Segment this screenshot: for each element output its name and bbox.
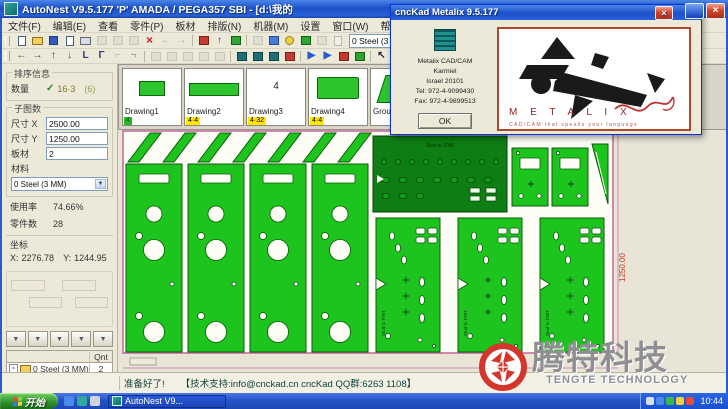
preview-button[interactable] — [62, 34, 77, 47]
nested-part-panel[interactable] — [126, 164, 182, 352]
subdrawing-group-title: 子图数 — [12, 102, 43, 115]
post-icon — [339, 52, 349, 61]
align-icon — [215, 52, 225, 61]
rotate-left-button[interactable] — [78, 50, 93, 63]
clock-icon — [253, 52, 263, 61]
copy-sheet-button[interactable] — [314, 34, 329, 47]
copy-icon — [113, 36, 123, 45]
copy-sheet-icon — [317, 36, 327, 45]
status-ready-text: 准备好了! — [124, 376, 165, 390]
check-icon — [46, 84, 54, 94]
align-button[interactable] — [212, 50, 227, 63]
verify-icon — [355, 52, 365, 61]
coord-y-label: Y: — [63, 253, 71, 263]
window-controls — [685, 3, 725, 19]
report-icon — [301, 36, 311, 45]
mirror-button[interactable] — [164, 50, 179, 63]
window-title: AutoNest V9.5.177 'P' AMADA / PEGA357 SB… — [22, 2, 293, 17]
arrow-left-icon — [17, 51, 27, 61]
about-line: Tel: 972-4-9099430 — [399, 87, 491, 97]
about-line: Fax: 972-4-9899513 — [399, 97, 491, 107]
system-tray: 10:44 — [640, 393, 728, 409]
menu-machine[interactable]: 机器(M) — [247, 18, 294, 33]
tray-icon-5[interactable] — [686, 397, 694, 405]
part-preview — [189, 83, 239, 96]
menu-file[interactable]: 文件(F) — [2, 18, 47, 33]
window-border-left — [0, 18, 2, 393]
taskbar: 开始 AutoNest V9... 10:44 — [0, 393, 728, 409]
move-down-button[interactable] — [62, 50, 77, 63]
toolbar-separator — [370, 51, 371, 62]
coordinates-readout: 坐标 X: 2276.78 Y: 1244.95 — [6, 235, 113, 267]
taskbar-clock[interactable]: 10:44 — [700, 396, 723, 406]
nested-part-panel[interactable] — [188, 164, 244, 352]
sheets-label: 板材 — [11, 147, 43, 160]
auto-nest-icon — [237, 52, 247, 61]
nested-part-slotted[interactable] — [552, 148, 588, 206]
sheets-table-header: Qnt — [7, 351, 112, 363]
tray-icon-2[interactable] — [656, 397, 664, 405]
thumbnail-label: Drawing4 — [311, 107, 345, 116]
parts-count-label: 零件数 — [10, 217, 50, 230]
coord-x-value: 2276.78 — [22, 253, 55, 263]
taskbar-item-autonest[interactable]: AutoNest V9... — [108, 395, 226, 408]
save-button[interactable] — [46, 34, 61, 47]
thumbnail-drawing2[interactable]: Drawing2 4·4 — [184, 68, 244, 126]
trim-button[interactable] — [266, 50, 281, 63]
sheet-toolbar — [6, 331, 113, 347]
thumbnail-drawing1[interactable]: Drawing1 4 — [122, 68, 182, 126]
size-y-field[interactable]: 1250.00 — [46, 132, 108, 145]
close-button[interactable] — [706, 3, 725, 19]
thumbnail-badge: 4·4 — [310, 117, 324, 125]
scissors-icon — [269, 52, 279, 61]
lamp-icon — [285, 36, 294, 45]
sheet-tool-2-button[interactable] — [28, 331, 48, 347]
arrow-down-icon — [67, 51, 72, 61]
sheet-height-dimension: 1250.00 — [618, 253, 627, 282]
parts-count-value: 28 — [53, 219, 63, 229]
menu-view[interactable]: 查看 — [92, 18, 124, 33]
thumbnail-badge: 4·4 — [186, 117, 200, 125]
toolbar-separator — [230, 51, 231, 62]
about-dialog-titlebar[interactable]: cncKad Metalix 9.5.177 — [391, 5, 701, 20]
taskbar-item-label: AutoNest V9... — [125, 396, 183, 406]
thumbnail-badge: 4 — [124, 117, 132, 125]
auto-nest-button[interactable] — [234, 50, 249, 63]
status-support-text: 【技术支持:info@cnckad.cn cncKad QQ群:6263 110… — [181, 376, 416, 390]
export-icon — [285, 52, 295, 61]
arrow-right-icon — [33, 51, 43, 61]
preview-icon — [66, 36, 74, 46]
copy-button[interactable] — [110, 34, 125, 47]
toolbar-separator — [246, 35, 247, 46]
thumbnail-drawing3[interactable]: 4 Drawing3 4·32 — [246, 68, 306, 126]
utilization-value: 74.66% — [53, 202, 84, 212]
brand-tagline: CAD/CAM that speaks your language — [509, 122, 638, 128]
sidebar-material-value: 0 Steel (3 MM) — [14, 180, 66, 189]
nesting-info-panel: 排序信息 数量 16·3 (6) 子图数 尺寸 X 2500.00 尺寸 Y 1… — [2, 64, 118, 372]
about-info-column: Metalix CAD/CAM Karmiel Israel 20101 Tel… — [399, 27, 491, 129]
sheet-button[interactable] — [228, 34, 243, 47]
info-group: 排序信息 数量 16·3 (6) — [6, 72, 113, 101]
page-icon — [334, 36, 342, 46]
thumbnail-label: Drawing3 — [249, 107, 283, 116]
verify-button[interactable] — [352, 50, 367, 63]
thumbnail-drawing4[interactable]: Drawing4 4·4 — [308, 68, 368, 126]
clamp-tab — [130, 358, 156, 365]
player-quicklaunch-icon[interactable] — [90, 396, 100, 406]
material-label: 材料 — [11, 162, 43, 175]
import-part-button[interactable] — [212, 34, 227, 47]
qnt-column-header: Qnt — [89, 352, 112, 362]
info-group-title: 排序信息 — [12, 67, 52, 80]
sheet-tool-5-button[interactable] — [93, 331, 113, 347]
quantity-label: 数量 — [11, 82, 43, 95]
about-dialog[interactable]: cncKad Metalix 9.5.177 Metalix CAD/CAM K… — [390, 4, 702, 135]
windows-flag-icon — [13, 396, 22, 406]
status-separator — [119, 376, 120, 390]
open-button[interactable] — [30, 34, 45, 47]
import-icon — [217, 36, 222, 46]
select-button[interactable] — [374, 50, 389, 63]
menu-edit[interactable]: 编辑(E) — [47, 18, 92, 33]
nested-part-panel[interactable] — [312, 164, 368, 352]
cut-icon — [97, 36, 107, 45]
mirror-icon — [167, 52, 177, 61]
group-button[interactable] — [180, 50, 195, 63]
corner-icon — [115, 51, 121, 61]
about-close-button[interactable] — [655, 6, 673, 20]
coord-x-label: X: — [10, 253, 19, 263]
nest-canvas[interactable]: Stud to T00T 1250.00 — [118, 130, 728, 372]
rotate-right-icon — [98, 51, 104, 61]
export-button[interactable] — [282, 50, 297, 63]
run-button[interactable] — [304, 50, 319, 63]
corner-icon — [131, 51, 137, 61]
report-button[interactable] — [298, 34, 313, 47]
metalix-logo-box: M E T A L I X CAD/CAM that speaks your l… — [497, 27, 691, 131]
metalix-app-icon — [434, 29, 456, 51]
status-bar: 准备好了! 【技术支持:info@cnckad.cn cncKad QQ群:62… — [2, 372, 726, 393]
play-icon — [308, 51, 316, 61]
simulate-icon — [324, 51, 332, 61]
size-y-label: 尺寸 Y — [11, 132, 43, 145]
delete-button[interactable] — [142, 34, 157, 47]
toolbar-grip[interactable] — [5, 36, 10, 46]
chevron-down-icon[interactable] — [95, 179, 106, 189]
menu-sheet[interactable]: 板材 — [169, 18, 201, 33]
toolbar-separator — [300, 51, 301, 62]
thumbnail-label: Drawing2 — [187, 107, 221, 116]
array-button[interactable] — [148, 50, 163, 63]
quantity-value: 16·3 — [57, 84, 75, 94]
menu-settings[interactable]: 设置 — [294, 18, 326, 33]
size-x-field[interactable]: 2500.00 — [46, 117, 108, 130]
sheet-tool-1-button[interactable] — [6, 331, 26, 347]
tray-icon-1[interactable] — [646, 397, 654, 405]
sheet-icon — [231, 36, 241, 45]
rotate-right-button[interactable] — [94, 50, 109, 63]
about-line: Israel 20101 — [399, 77, 491, 87]
ie-quicklaunch-icon[interactable] — [64, 396, 74, 406]
arrow-up-icon — [51, 51, 56, 61]
corner-1-button[interactable] — [110, 50, 125, 63]
toolbar-separator — [192, 35, 193, 46]
about-dialog-title: cncKad Metalix 9.5.177 — [395, 7, 499, 18]
nested-part-slotted[interactable] — [512, 148, 548, 206]
part-count-mark: 4 — [273, 81, 279, 92]
paste-button[interactable] — [126, 34, 141, 47]
ungroup-icon — [199, 52, 209, 61]
thumbnail-badge: 4·32 — [248, 117, 266, 125]
undo-icon — [161, 36, 171, 46]
page-button[interactable] — [330, 34, 345, 47]
ok-button[interactable]: OK — [418, 113, 472, 129]
disabled-field — [11, 280, 45, 291]
screen: AutoNest V9.5.177 'P' AMADA / PEGA357 SB… — [0, 0, 728, 409]
open-icon — [32, 37, 43, 45]
funnel-icon — [100, 334, 107, 344]
sheet-tool-4-button[interactable] — [71, 331, 91, 347]
micro-joint-tab — [526, 344, 538, 352]
print-button[interactable] — [78, 34, 93, 47]
redo-button[interactable] — [174, 34, 189, 47]
brand-wordmark: M E T A L I X — [509, 107, 632, 118]
toolbar-grip[interactable] — [5, 51, 10, 61]
tray-icon-4[interactable] — [676, 397, 684, 405]
start-button[interactable]: 开始 — [0, 393, 58, 409]
redo-icon — [177, 36, 187, 46]
nested-part-panel[interactable] — [250, 164, 306, 352]
funnel-icon — [78, 334, 85, 344]
pointer-icon — [377, 51, 385, 61]
about-line: Karmiel — [399, 67, 491, 77]
micro-joint-tab — [526, 216, 538, 225]
offset-group-disabled — [6, 271, 113, 327]
metalix-logo: M E T A L I X CAD/CAM that speaks your l… — [499, 29, 689, 129]
undo-button[interactable] — [158, 34, 173, 47]
funnel-icon — [12, 334, 19, 344]
print-icon — [80, 37, 91, 45]
part-preview — [317, 77, 359, 99]
part-library-button[interactable] — [196, 34, 211, 47]
micro-joint-tab — [444, 344, 456, 352]
micro-joint-tab — [444, 216, 456, 225]
simulate-button[interactable] — [320, 50, 335, 63]
nested-part-panel-bottom[interactable] — [376, 218, 440, 352]
move-up-button[interactable] — [46, 50, 61, 63]
filter-icon — [253, 36, 263, 45]
schedule-button[interactable] — [250, 50, 265, 63]
rotate-left-icon — [82, 51, 88, 61]
lamp-button[interactable] — [282, 34, 297, 47]
nested-part-panel-bottom[interactable] — [540, 218, 604, 352]
group-icon — [183, 52, 193, 61]
menu-nest[interactable]: 排版(N) — [201, 18, 247, 33]
menu-window[interactable]: 窗口(W) — [326, 18, 374, 33]
sidebar-material-combobox[interactable]: 0 Steel (3 MM) — [11, 177, 108, 191]
coord-y-value: 1244.95 — [74, 253, 107, 263]
post-button[interactable] — [336, 50, 351, 63]
disabled-field — [29, 297, 62, 308]
cut-button[interactable] — [94, 34, 109, 47]
part-preview — [139, 81, 165, 96]
app-icon — [4, 2, 18, 16]
new-button[interactable] — [14, 34, 29, 47]
nested-part-dark[interactable]: Stud to 2000 — [373, 136, 507, 212]
coordinates-label: 坐标 — [10, 238, 109, 251]
array-icon — [151, 52, 161, 61]
sheets-field[interactable]: 2 — [46, 147, 108, 160]
size-x-label: 尺寸 X — [11, 117, 43, 130]
save-icon — [49, 36, 58, 45]
ungroup-button[interactable] — [196, 50, 211, 63]
info-button[interactable] — [266, 34, 281, 47]
menu-part[interactable]: 零件(P) — [124, 18, 169, 33]
restore-button[interactable] — [685, 3, 704, 19]
subdrawing-group: 子图数 尺寸 X 2500.00 尺寸 Y 1250.00 板材 2 材料 0 … — [6, 107, 113, 197]
thumbnail-label: Drawing1 — [125, 107, 159, 116]
sheet-tool-3-button[interactable] — [50, 331, 70, 347]
disabled-field — [75, 297, 108, 308]
funnel-icon — [56, 334, 63, 344]
svg-text:Stud to 2000: Stud to 2000 — [426, 143, 455, 149]
autonest-task-icon — [112, 396, 122, 406]
corner-2-button[interactable] — [126, 50, 141, 63]
move-right-button[interactable] — [30, 50, 45, 63]
part-library-icon — [199, 36, 209, 45]
new-icon — [18, 36, 26, 46]
paste-icon — [129, 36, 139, 45]
quantity-extra: (6) — [84, 84, 95, 94]
quick-launch — [64, 396, 100, 406]
tray-icon-3[interactable] — [666, 397, 674, 405]
filter-button[interactable] — [250, 34, 265, 47]
desktop-quicklaunch-icon[interactable] — [77, 396, 87, 406]
disabled-field — [62, 280, 96, 291]
move-left-button[interactable] — [14, 50, 29, 63]
nested-part-panel-bottom[interactable] — [458, 218, 522, 352]
info-icon — [269, 36, 279, 45]
funnel-icon — [34, 334, 41, 344]
delete-icon — [146, 34, 153, 47]
start-button-label: 开始 — [25, 394, 45, 409]
toolbar-separator — [144, 51, 145, 62]
about-line: Metalix CAD/CAM — [399, 57, 491, 67]
utilization-label: 使用率 — [10, 200, 50, 213]
